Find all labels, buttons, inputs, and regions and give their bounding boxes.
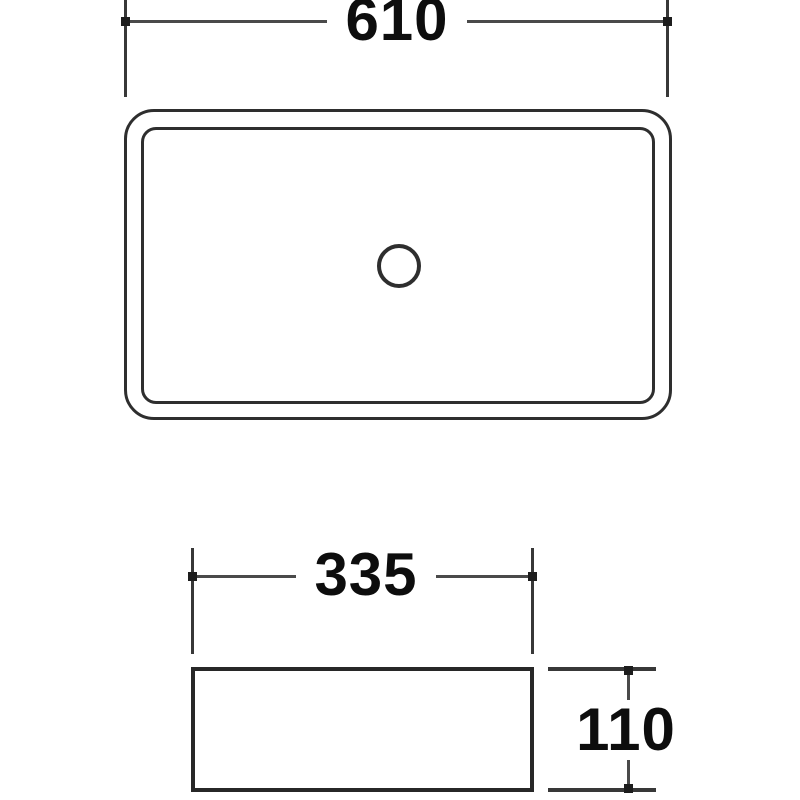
dimension-tick-110-top — [624, 666, 633, 675]
extension-line-110-top — [548, 667, 656, 671]
dimension-line-335-left-segment — [191, 575, 305, 578]
basin-front-view — [191, 667, 534, 792]
technical-drawing-canvas: 610 335 110 — [0, 0, 800, 800]
dimension-tick-335-right — [528, 572, 537, 581]
extension-line-610-left — [124, 0, 127, 97]
dimension-line-335-right-segment — [434, 575, 534, 578]
dimension-tick-335-left — [188, 572, 197, 581]
extension-line-335-right — [531, 548, 534, 654]
dimension-label-base-height: 110 — [556, 700, 696, 760]
dimension-line-610-left-segment — [124, 20, 337, 23]
dimension-label-base-width: 335 — [296, 545, 436, 605]
dimension-tick-610-left — [121, 17, 130, 26]
dimension-tick-610-right — [663, 17, 672, 26]
dimension-tick-110-bottom — [624, 784, 633, 793]
extension-line-335-left — [191, 548, 194, 654]
dimension-line-610-right-segment — [461, 20, 669, 23]
extension-line-110-bottom — [548, 788, 656, 792]
extension-line-610-right — [666, 0, 669, 97]
dimension-label-overall-width: 610 — [327, 0, 467, 50]
drain-hole-circle — [377, 244, 421, 288]
